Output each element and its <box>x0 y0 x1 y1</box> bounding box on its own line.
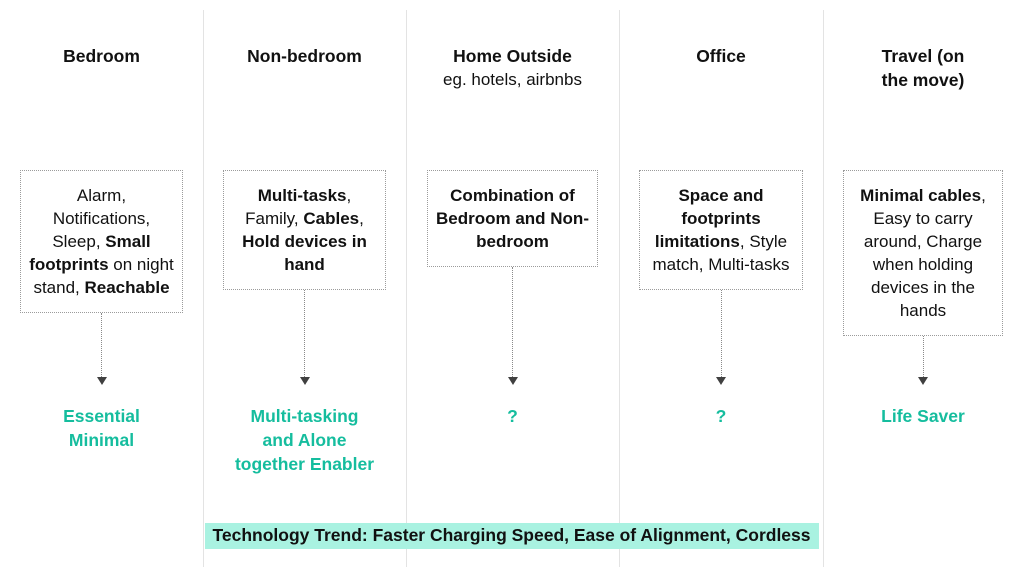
down-arrow-icon <box>97 313 107 385</box>
flow: Alarm, Notifications, Sleep, Small footp… <box>0 170 203 385</box>
arrow-head <box>716 377 726 385</box>
arrow-line <box>721 290 722 377</box>
insight-label: ? <box>619 404 823 428</box>
column-header: Bedroom <box>0 44 203 68</box>
down-arrow-icon <box>300 290 310 385</box>
insight-label: Essential Minimal <box>0 404 203 452</box>
flow: Combination of Bedroom and Non-bedroom <box>406 170 619 385</box>
column-home-outside: Home Outside eg. hotels, airbnbs Combina… <box>406 0 619 573</box>
column-title: Bedroom <box>0 44 203 68</box>
whiteboard-canvas: Bedroom Alarm, Notifications, Sleep, Sma… <box>0 0 1023 573</box>
column-title: Travel (on the move) <box>823 44 1023 92</box>
arrow-head <box>300 377 310 385</box>
flow: Space and footprints limitations, Style … <box>619 170 823 385</box>
needs-box: Minimal cables, Easy to carry around, Ch… <box>843 170 1003 336</box>
down-arrow-icon <box>918 336 928 385</box>
needs-box: Multi-tasks, Family, Cables, Hold device… <box>223 170 385 290</box>
insight-label: Life Saver <box>823 404 1023 428</box>
column-bedroom: Bedroom Alarm, Notifications, Sleep, Sma… <box>0 0 203 573</box>
arrow-line <box>923 336 924 377</box>
column-subtitle: eg. hotels, airbnbs <box>406 68 619 91</box>
down-arrow-icon <box>716 290 726 385</box>
arrow-head <box>97 377 107 385</box>
column-header: Non-bedroom <box>203 44 406 68</box>
insight-label: Multi-tasking and Alone together Enabler <box>203 404 406 476</box>
columns-row: Bedroom Alarm, Notifications, Sleep, Sma… <box>0 0 1023 573</box>
trend-banner: Technology Trend: Faster Charging Speed,… <box>204 523 818 549</box>
column-travel: Travel (on the move) Minimal cables, Eas… <box>823 0 1023 573</box>
column-non-bedroom: Non-bedroom Multi-tasks, Family, Cables,… <box>203 0 406 573</box>
column-title: Non-bedroom <box>203 44 406 68</box>
needs-box: Space and footprints limitations, Style … <box>639 170 802 290</box>
arrow-line <box>101 313 102 377</box>
column-header: Office <box>619 44 823 68</box>
column-title: Home Outside <box>406 44 619 68</box>
flow: Minimal cables, Easy to carry around, Ch… <box>823 170 1023 385</box>
down-arrow-icon <box>508 267 518 385</box>
column-office: Office Space and footprints limitations,… <box>619 0 823 573</box>
needs-box: Combination of Bedroom and Non-bedroom <box>427 170 597 267</box>
flow: Multi-tasks, Family, Cables, Hold device… <box>203 170 406 385</box>
arrow-head <box>508 377 518 385</box>
arrow-line <box>512 267 513 377</box>
needs-box: Alarm, Notifications, Sleep, Small footp… <box>20 170 182 313</box>
arrow-head <box>918 377 928 385</box>
column-title: Office <box>619 44 823 68</box>
trend-banner-text: Technology Trend: Faster Charging Speed,… <box>212 525 810 545</box>
column-header: Home Outside eg. hotels, airbnbs <box>406 44 619 91</box>
column-header: Travel (on the move) <box>823 44 1023 92</box>
arrow-line <box>304 290 305 377</box>
insight-label: ? <box>406 404 619 428</box>
